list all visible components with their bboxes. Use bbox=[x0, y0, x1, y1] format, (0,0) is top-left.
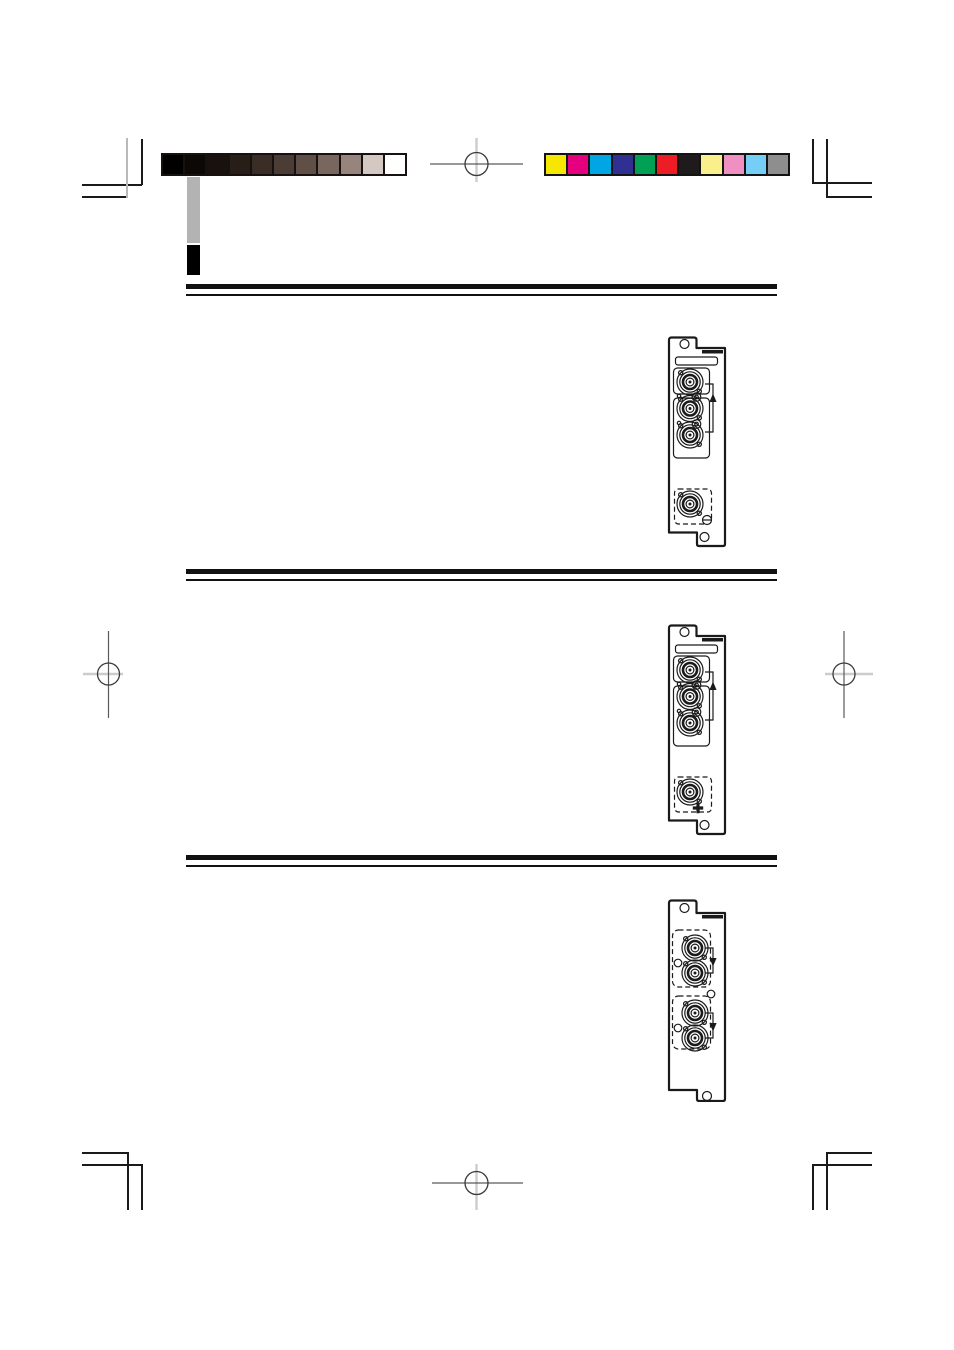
crop-line bbox=[827, 196, 872, 198]
section-rule-1-thin bbox=[186, 294, 777, 296]
mounting-hole bbox=[680, 628, 689, 637]
section-rule-1-thick bbox=[186, 284, 777, 289]
screw-hole bbox=[677, 709, 680, 712]
label-strip bbox=[676, 645, 718, 653]
color-black bbox=[679, 155, 699, 174]
bnc-panel-diagram-2 bbox=[667, 624, 727, 836]
mounting-hole bbox=[680, 340, 689, 349]
grayscale-calibration-bar bbox=[161, 153, 407, 176]
arrow-up-icon bbox=[709, 394, 716, 403]
crop-line bbox=[812, 139, 814, 184]
gray-step-4 bbox=[230, 155, 250, 174]
bnc-connector-icon bbox=[677, 710, 703, 736]
crop-line bbox=[826, 1152, 828, 1210]
screw-hole bbox=[677, 394, 680, 397]
section-rule-2-thick bbox=[186, 569, 777, 574]
label-strip bbox=[676, 357, 718, 365]
screw-hole bbox=[677, 682, 680, 685]
bnc-connector-icon bbox=[677, 491, 703, 517]
color-yellow bbox=[546, 155, 566, 174]
bnc-connector-icon bbox=[677, 779, 703, 805]
color-green bbox=[635, 155, 655, 174]
crop-line bbox=[82, 184, 142, 186]
gray-step-8 bbox=[318, 155, 338, 174]
crop-line bbox=[813, 1164, 872, 1166]
gray-step-9 bbox=[341, 155, 361, 174]
color-light-blue bbox=[746, 155, 766, 174]
color-blue bbox=[613, 155, 633, 174]
gray-step-11 bbox=[385, 155, 405, 174]
arrow-up-icon bbox=[709, 682, 716, 691]
mounting-hole bbox=[700, 821, 709, 830]
bnc-panel-diagram-3 bbox=[667, 899, 727, 1102]
section-rule-3-thin bbox=[186, 865, 777, 867]
gray-step-1 bbox=[163, 155, 183, 174]
color-pink bbox=[724, 155, 744, 174]
color-magenta bbox=[568, 155, 588, 174]
screw-hole bbox=[707, 990, 715, 998]
crop-line bbox=[82, 196, 128, 198]
bnc-connector-icon bbox=[682, 1025, 708, 1051]
section-rule-2-thin bbox=[186, 579, 777, 581]
color-cyan bbox=[590, 155, 610, 174]
mounting-hole bbox=[703, 1092, 712, 1101]
bnc-connector-icon bbox=[677, 369, 703, 395]
crop-line bbox=[827, 1152, 872, 1154]
bnc-connector-icon bbox=[682, 960, 708, 986]
crop-line bbox=[813, 182, 872, 184]
panel-rail bbox=[702, 350, 723, 354]
bnc-connector-icon bbox=[677, 657, 703, 683]
registration-mark-left-middle bbox=[78, 626, 130, 722]
registration-mark-right-middle bbox=[815, 626, 877, 722]
color-red bbox=[657, 155, 677, 174]
slotted-screw-icon bbox=[703, 516, 712, 525]
gray-step-2 bbox=[185, 155, 205, 174]
registration-mark-top-center bbox=[425, 133, 530, 188]
bnc-connector-icon bbox=[682, 1000, 708, 1026]
section-rule-3-thick bbox=[186, 855, 777, 860]
panel-rail bbox=[702, 638, 723, 642]
gray-step-6 bbox=[274, 155, 294, 174]
panel-rail bbox=[702, 915, 723, 919]
bnc-connector-icon bbox=[677, 422, 703, 448]
bnc-connector-icon bbox=[677, 396, 703, 422]
crop-line bbox=[127, 1152, 129, 1210]
chapter-tab-gray-bar bbox=[187, 177, 200, 243]
crop-line bbox=[141, 1164, 143, 1210]
mounting-hole bbox=[680, 904, 689, 913]
color-gray bbox=[768, 155, 788, 174]
chapter-tab-black-square bbox=[187, 245, 200, 275]
registration-mark-bottom-center bbox=[425, 1155, 530, 1215]
screw-hole bbox=[674, 959, 682, 967]
crop-line bbox=[126, 138, 128, 198]
color-light-yellow bbox=[701, 155, 721, 174]
crop-line bbox=[82, 1164, 143, 1166]
crop-line bbox=[826, 139, 828, 198]
gray-step-5 bbox=[252, 155, 272, 174]
mounting-hole bbox=[700, 533, 709, 542]
screw-hole bbox=[674, 1024, 682, 1032]
crop-line bbox=[141, 139, 143, 185]
bnc-connector-icon bbox=[677, 684, 703, 710]
color-calibration-bar bbox=[544, 153, 790, 176]
gray-step-7 bbox=[296, 155, 316, 174]
scanned-page bbox=[0, 0, 954, 1350]
gray-step-3 bbox=[207, 155, 227, 174]
crop-line bbox=[812, 1164, 814, 1210]
gray-step-10 bbox=[363, 155, 383, 174]
bnc-connector-icon bbox=[682, 935, 708, 961]
bnc-panel-diagram-1 bbox=[667, 336, 727, 548]
screw-hole bbox=[677, 421, 680, 424]
crop-line bbox=[82, 1152, 129, 1154]
